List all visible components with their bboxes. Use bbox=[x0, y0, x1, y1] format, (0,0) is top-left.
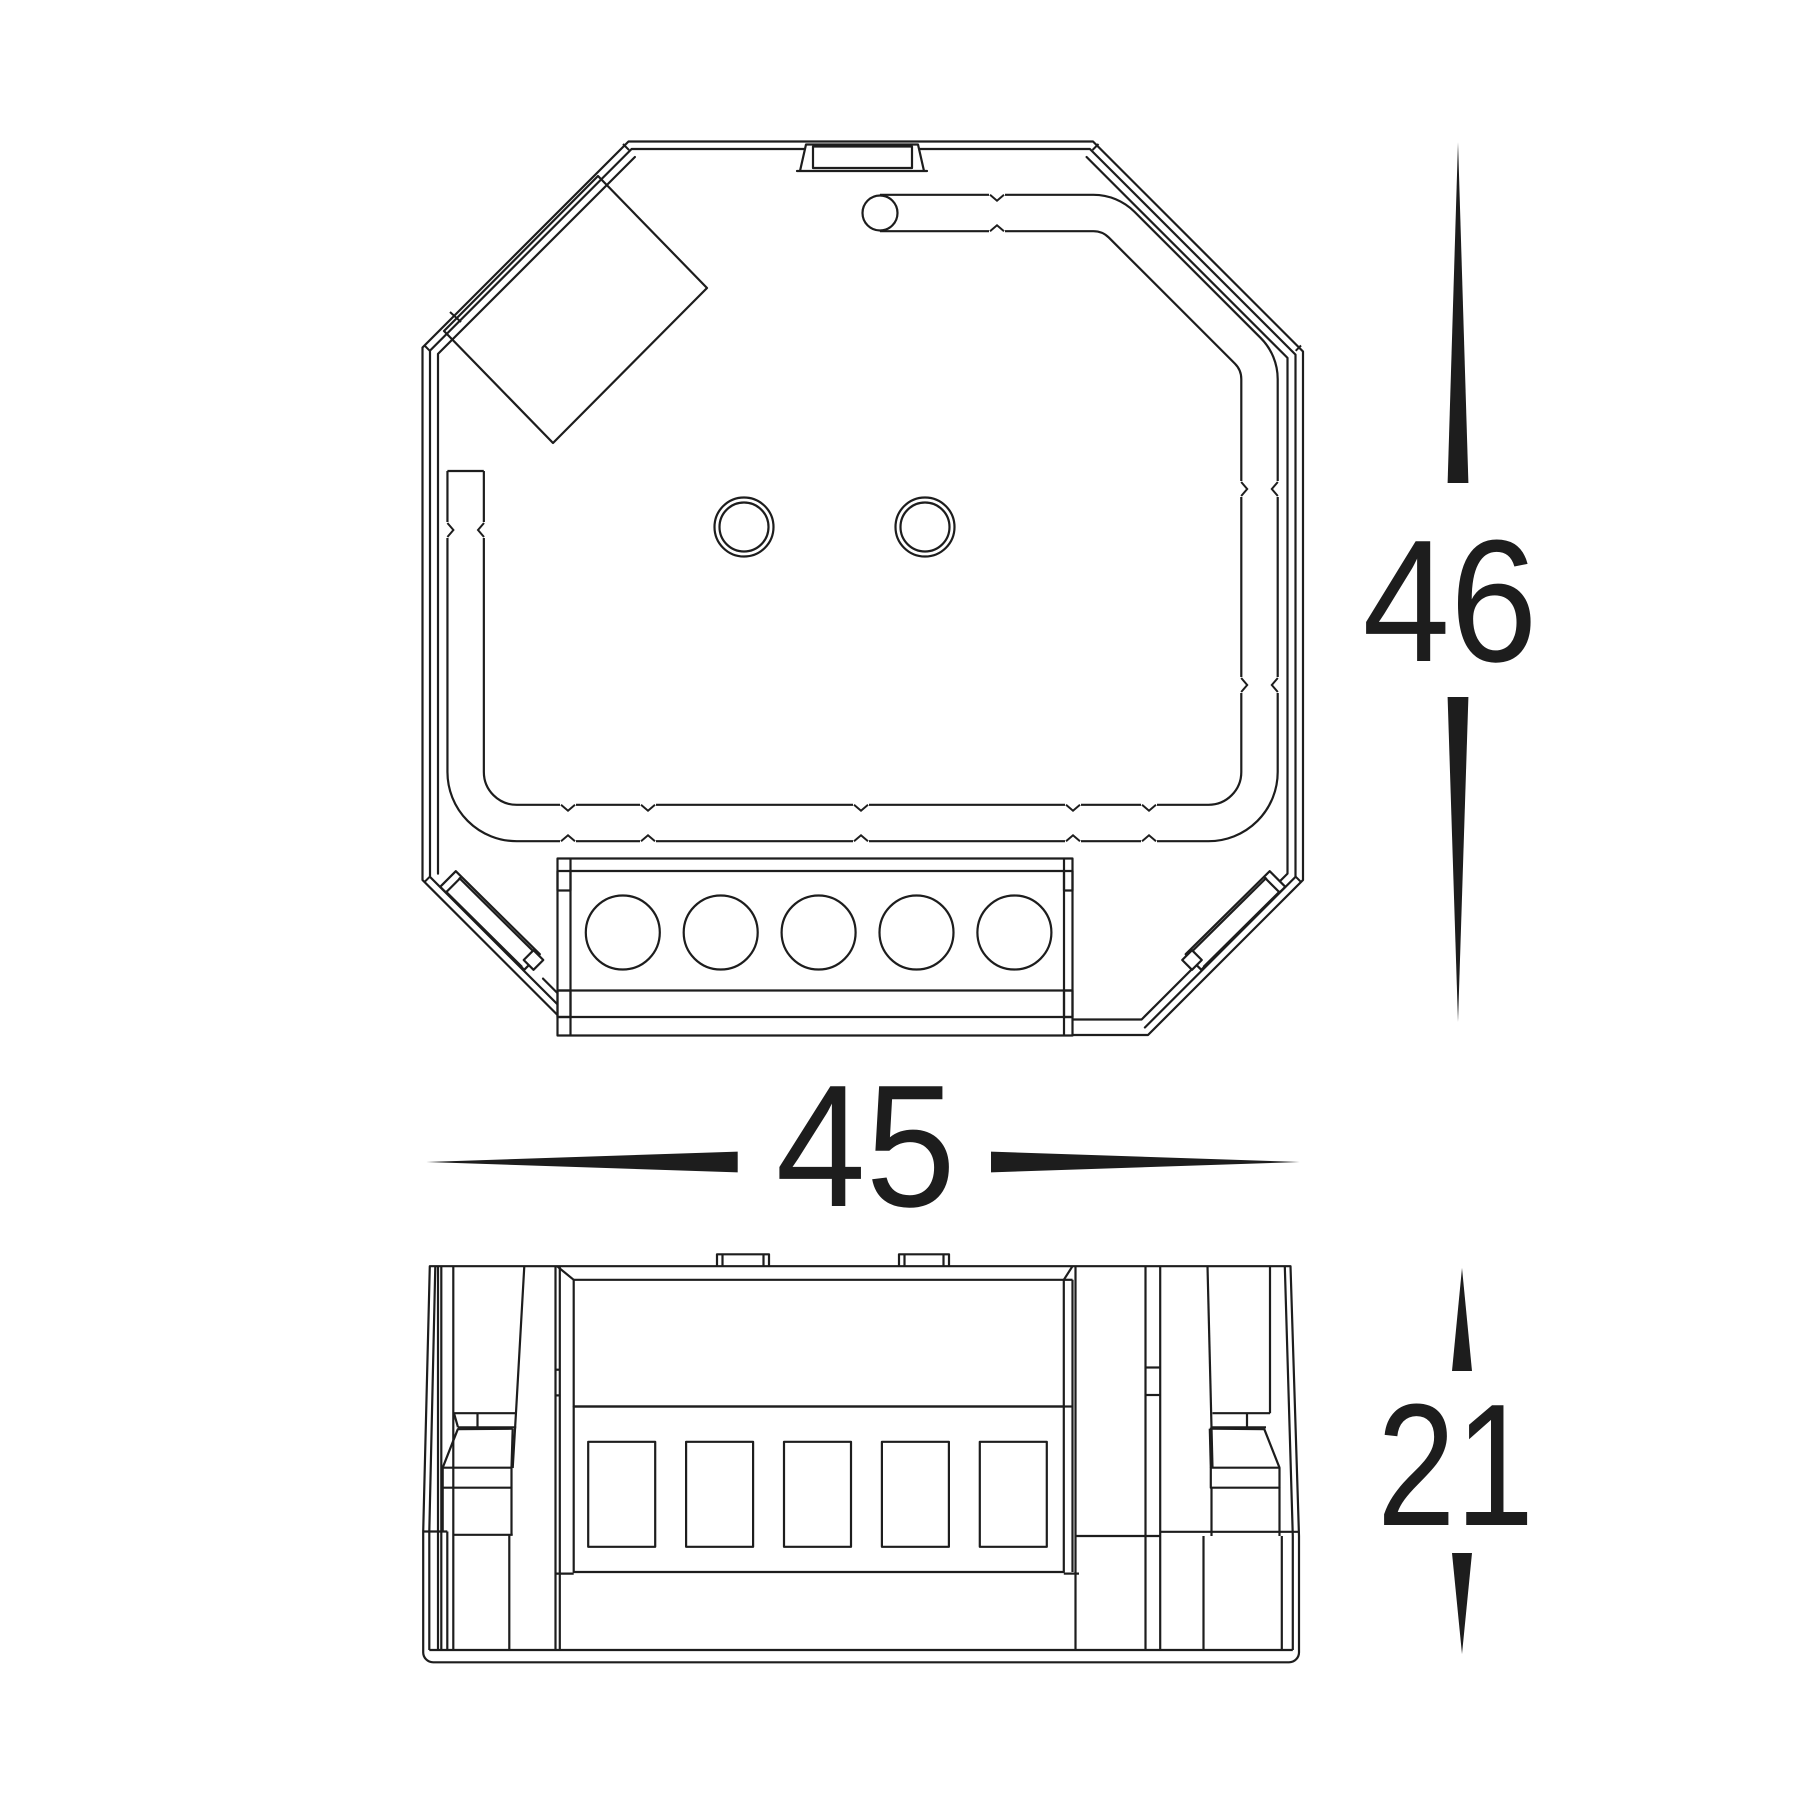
svg-text:45: 45 bbox=[776, 1048, 956, 1243]
svg-text:21: 21 bbox=[1377, 1367, 1534, 1562]
svg-text:46: 46 bbox=[1363, 503, 1538, 698]
